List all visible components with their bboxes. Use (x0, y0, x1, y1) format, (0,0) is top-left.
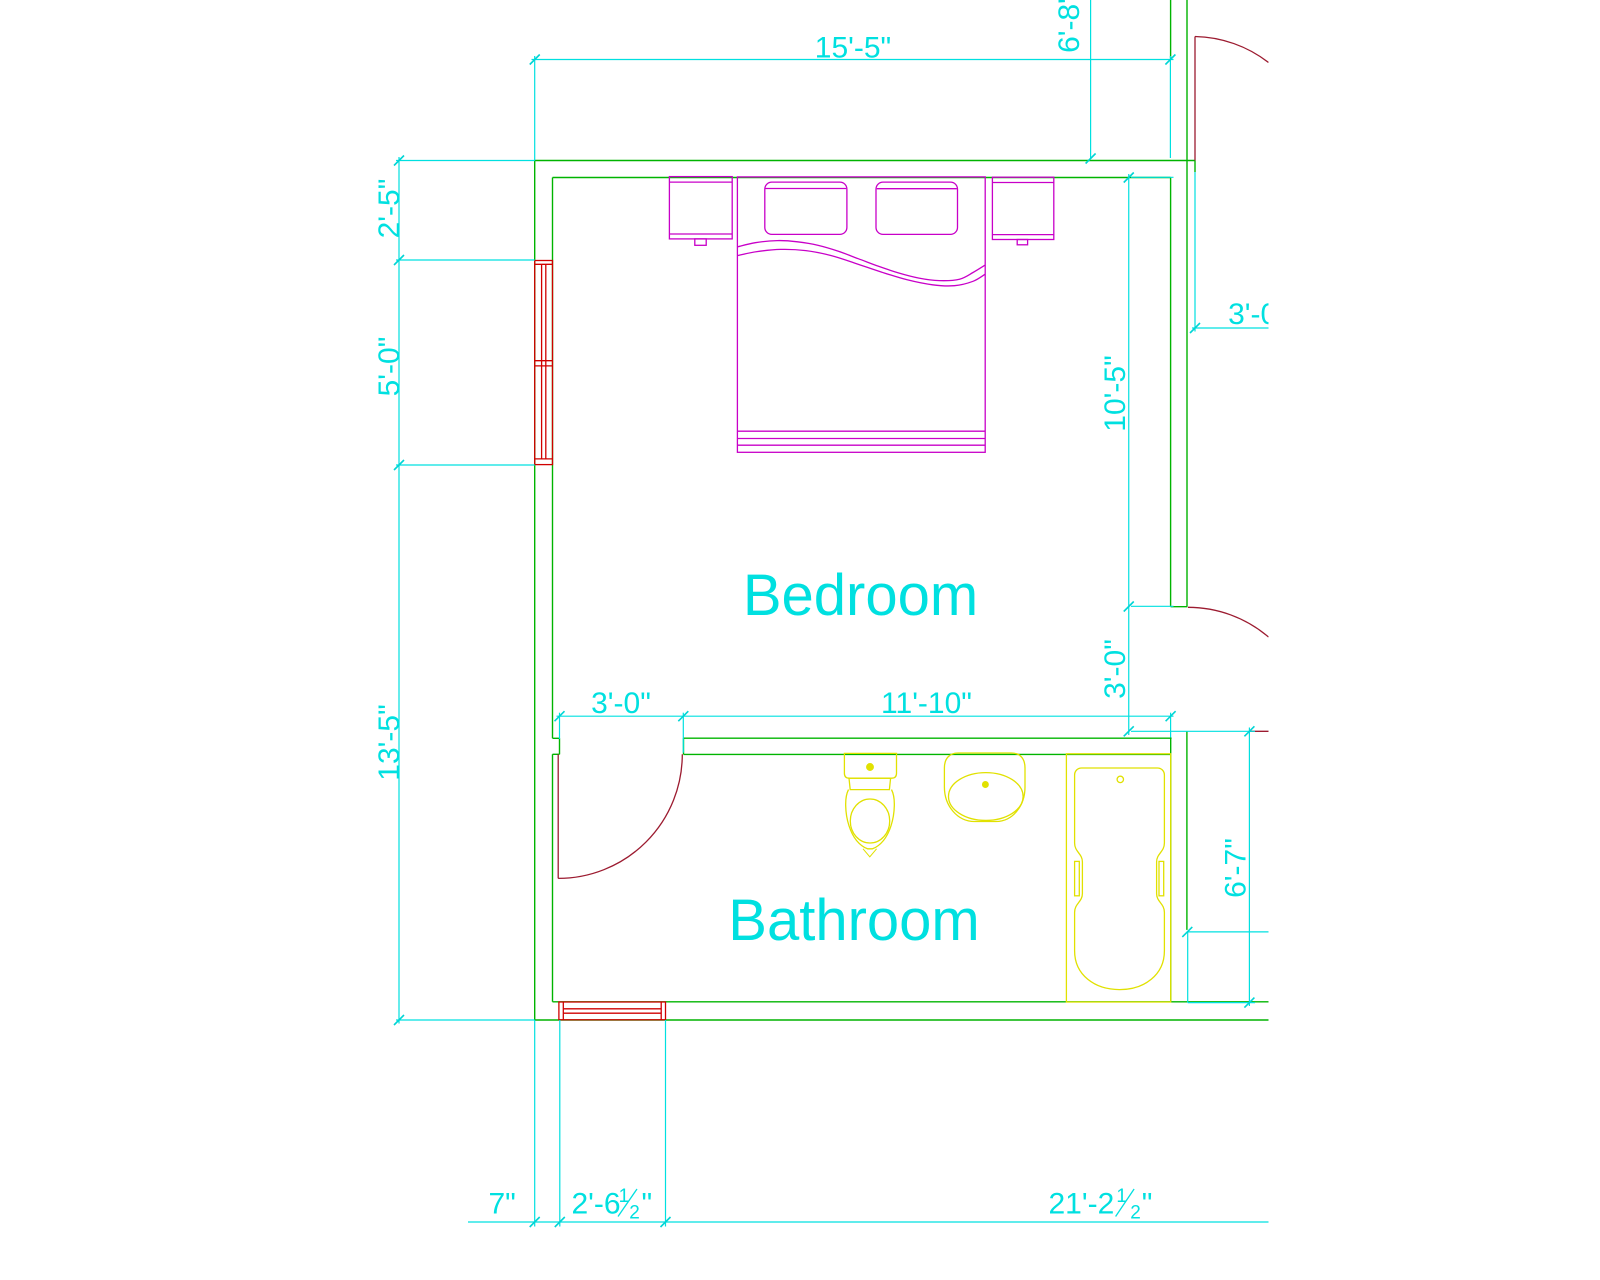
svg-text:2'-5": 2'-5" (373, 179, 406, 239)
svg-text:13'-5": 13'-5" (373, 704, 406, 780)
svg-text:2: 2 (629, 1202, 640, 1223)
svg-text:Bathroom: Bathroom (728, 888, 979, 953)
svg-text:6'-8": 6'-8" (1053, 0, 1086, 53)
svg-text:10'-5": 10'-5" (1099, 355, 1132, 431)
svg-text:2: 2 (1130, 1202, 1141, 1223)
svg-text:3'-0": 3'-0" (1228, 298, 1288, 331)
svg-text:21'-2: 21'-2 (1049, 1188, 1115, 1221)
svg-text:11'-10": 11'-10" (881, 687, 972, 720)
svg-text:5'-0": 5'-0" (373, 337, 406, 397)
svg-text:2'-6: 2'-6 (572, 1188, 621, 1221)
svg-text:Bedroom: Bedroom (743, 563, 978, 628)
svg-text:6'-7": 6'-7" (1220, 838, 1253, 898)
svg-text:7": 7" (489, 1188, 516, 1221)
svg-text:": " (642, 1188, 653, 1221)
svg-text:": " (1142, 1188, 1153, 1221)
svg-text:3'-0": 3'-0" (591, 687, 651, 720)
svg-text:15'-5": 15'-5" (815, 31, 891, 64)
svg-text:3'-0": 3'-0" (1099, 639, 1132, 699)
svg-text:1: 1 (1116, 1186, 1127, 1207)
